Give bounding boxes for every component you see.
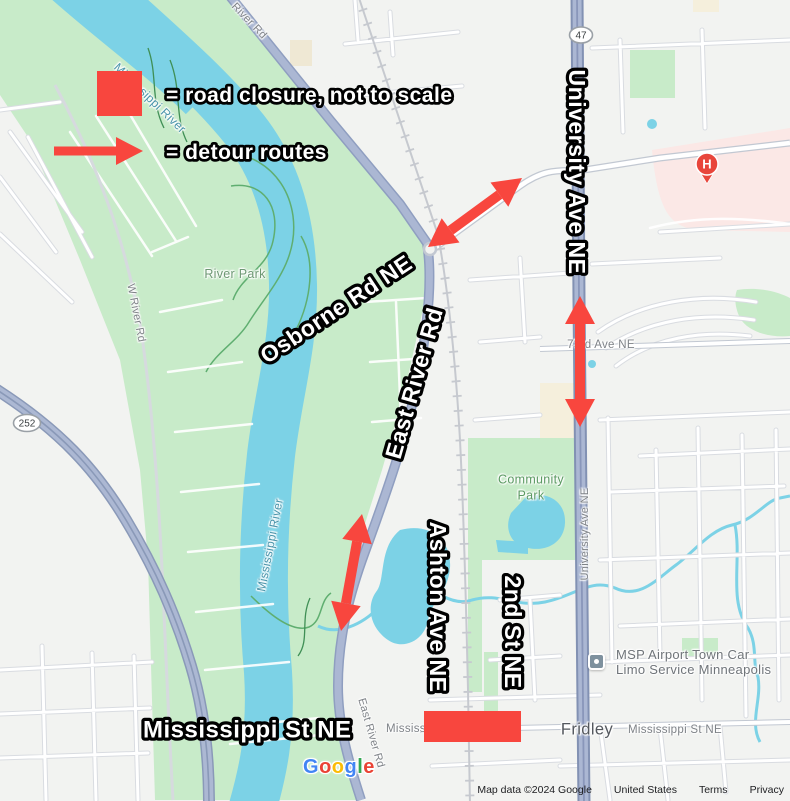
map-data-credit: Map data ©2024 Google	[477, 784, 592, 796]
detour-arrow-university-head-n	[565, 296, 595, 324]
google-logo[interactable]: Google	[303, 756, 375, 779]
privacy-link[interactable]: Privacy	[750, 784, 784, 796]
detour-arrow-east-river-shaft	[346, 542, 357, 604]
map-canvas[interactable]: 47 252 H River Rd Mississippi River W Ri…	[0, 0, 790, 801]
detour-arrow-osborne-shaft	[451, 195, 500, 231]
legend-detour-arrow-head	[116, 137, 143, 165]
annotation-layer: = road closure, not to scale = detour ro…	[0, 0, 790, 801]
osborne-rd-annotation: Osborne Rd NE	[255, 249, 417, 368]
detour-arrow-east-river-head-n	[342, 514, 372, 544]
detour-arrow-east-river-head-s	[331, 601, 361, 631]
map-attribution: Map data ©2024 Google United States Term…	[477, 784, 784, 796]
legend-detour-label: = detour routes	[166, 141, 327, 164]
terms-link[interactable]: Terms	[699, 784, 728, 796]
mississippi-st-annotation: Mississippi St NE	[143, 717, 352, 744]
legend-closure-square	[97, 71, 142, 116]
ashton-ave-annotation: Ashton Ave NE	[425, 522, 451, 693]
google-logo-letter: g	[345, 756, 358, 778]
region-label: United States	[614, 784, 677, 796]
detour-arrow-university-head-s	[565, 399, 595, 427]
google-logo-letter: o	[319, 756, 332, 778]
legend-closure-label: = road closure, not to scale	[166, 84, 453, 107]
university-ave-annotation: University Ave NE	[564, 70, 590, 275]
closure-rectangle-mississippi-st	[424, 711, 521, 742]
east-river-rd-annotation: East River Rd	[380, 304, 448, 461]
google-logo-letter: o	[332, 756, 345, 778]
second-st-annotation: 2nd St NE	[500, 575, 526, 688]
google-logo-letter: G	[303, 756, 319, 778]
google-logo-letter: e	[363, 756, 375, 778]
